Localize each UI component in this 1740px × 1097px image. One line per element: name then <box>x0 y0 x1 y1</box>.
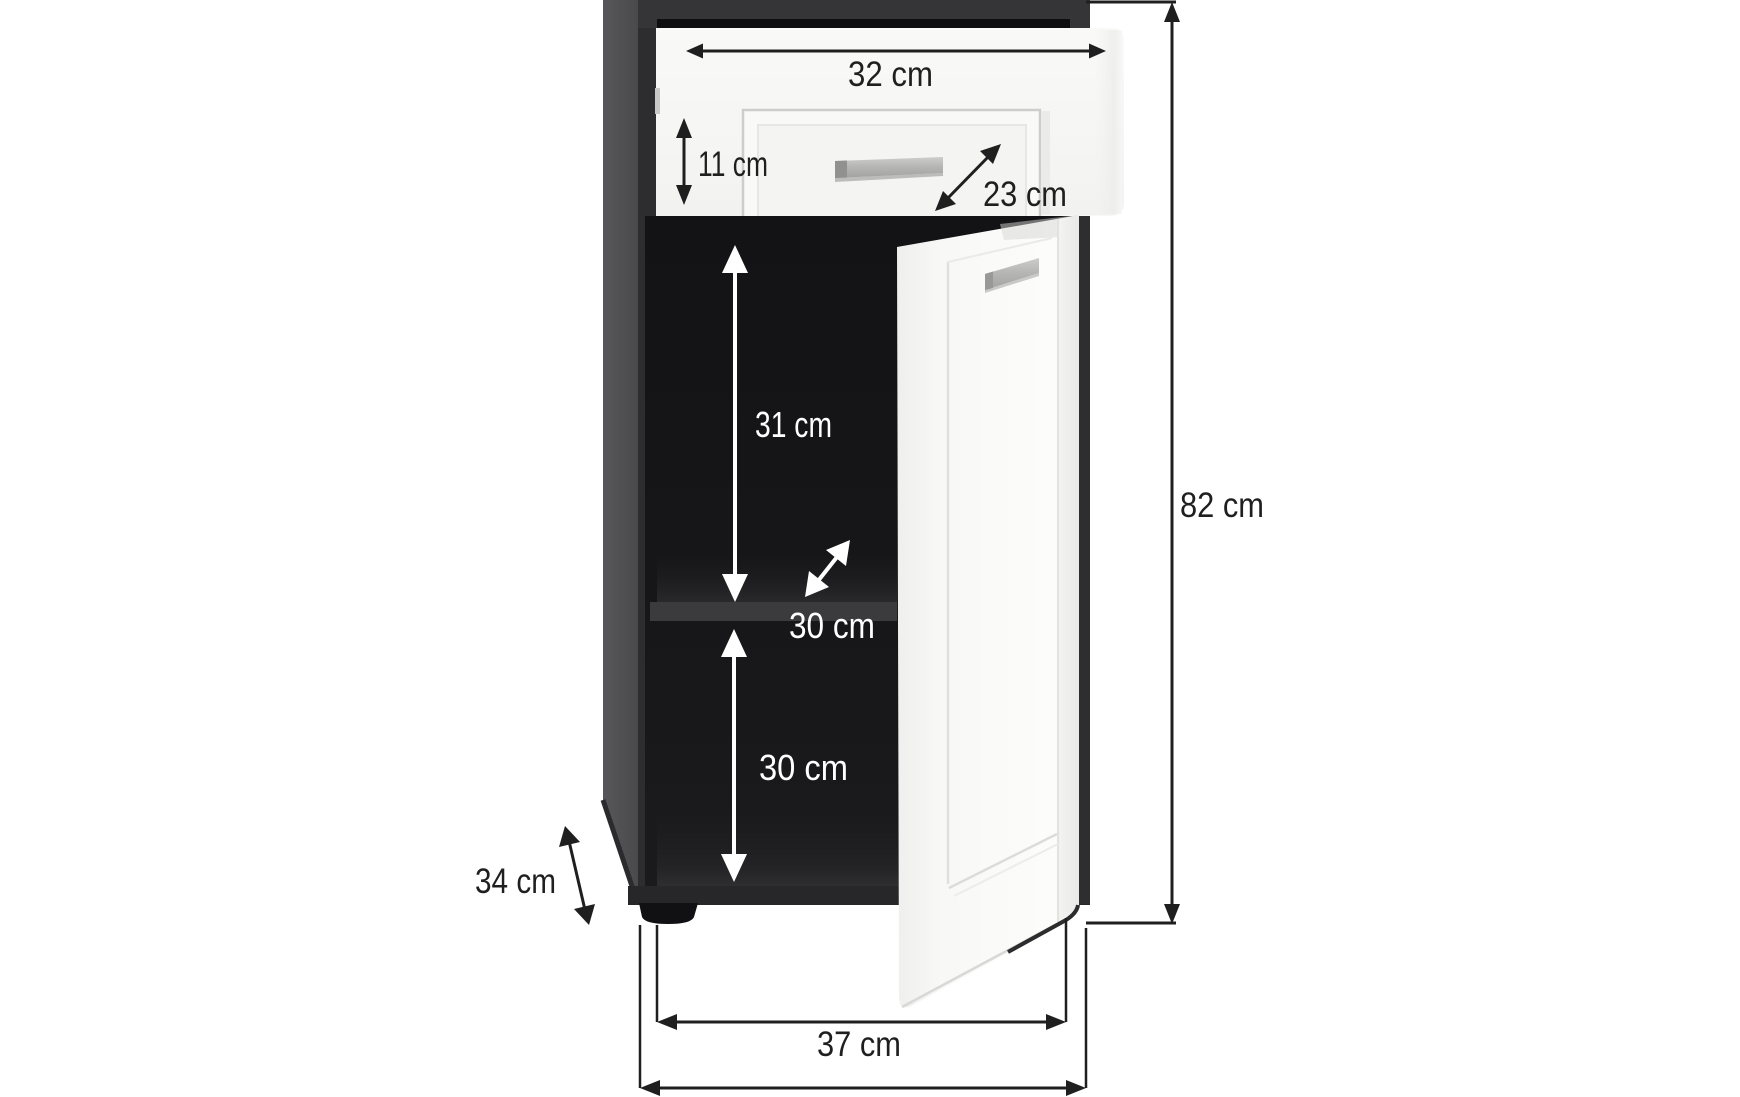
svg-text:11 cm: 11 cm <box>698 145 768 184</box>
svg-text:31 cm: 31 cm <box>755 404 832 445</box>
svg-text:32 cm: 32 cm <box>848 55 933 94</box>
svg-text:37 cm: 37 cm <box>817 1025 901 1064</box>
svg-text:23 cm: 23 cm <box>983 175 1067 214</box>
svg-text:34 cm: 34 cm <box>475 862 556 901</box>
svg-text:30 cm: 30 cm <box>789 605 875 646</box>
svg-text:82 cm: 82 cm <box>1180 486 1264 525</box>
svg-text:30 cm: 30 cm <box>759 747 848 788</box>
